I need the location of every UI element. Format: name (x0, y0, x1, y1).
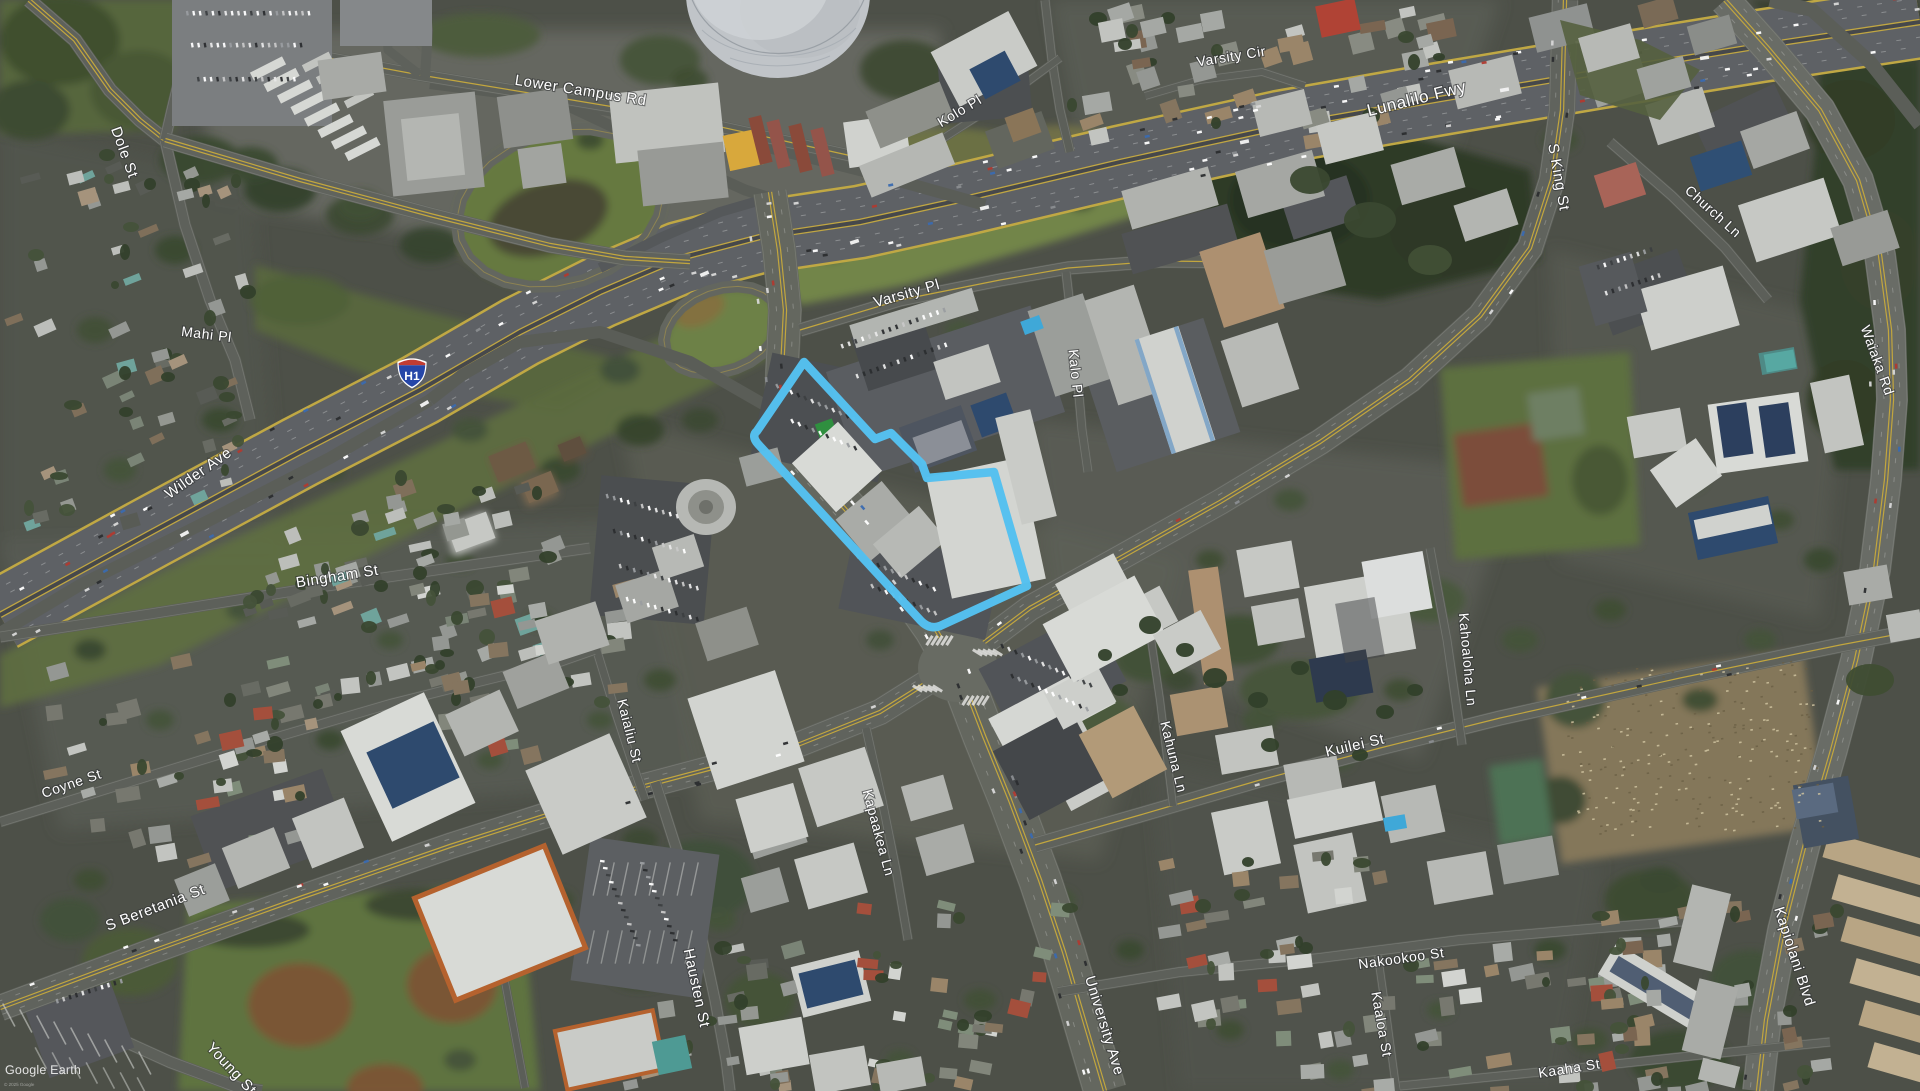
svg-text:Google Earth: Google Earth (5, 1063, 81, 1077)
svg-text:© 2025 Google: © 2025 Google (4, 1082, 35, 1087)
svg-text:H1: H1 (404, 369, 420, 383)
